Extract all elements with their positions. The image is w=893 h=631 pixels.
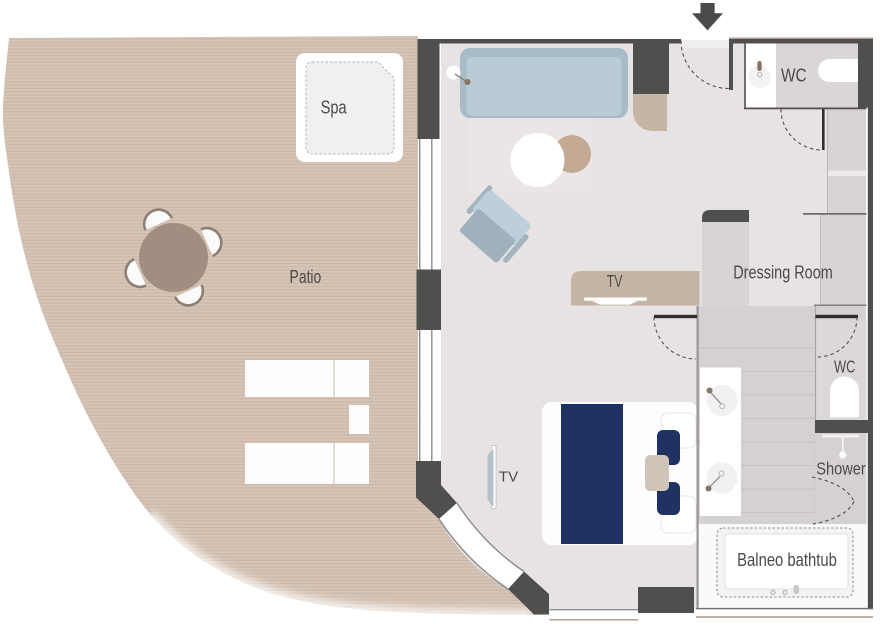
- svg-text:Balneo bathtub: Balneo bathtub: [737, 550, 837, 571]
- svg-text:Dressing Room: Dressing Room: [733, 263, 833, 283]
- svg-text:TV: TV: [607, 272, 623, 292]
- svg-text:WC: WC: [834, 358, 855, 377]
- svg-text:Shower: Shower: [816, 460, 866, 479]
- svg-text:Patio: Patio: [290, 267, 322, 287]
- svg-text:Spa: Spa: [321, 97, 348, 118]
- svg-text:TV: TV: [499, 468, 518, 485]
- svg-text:WC: WC: [781, 65, 807, 86]
